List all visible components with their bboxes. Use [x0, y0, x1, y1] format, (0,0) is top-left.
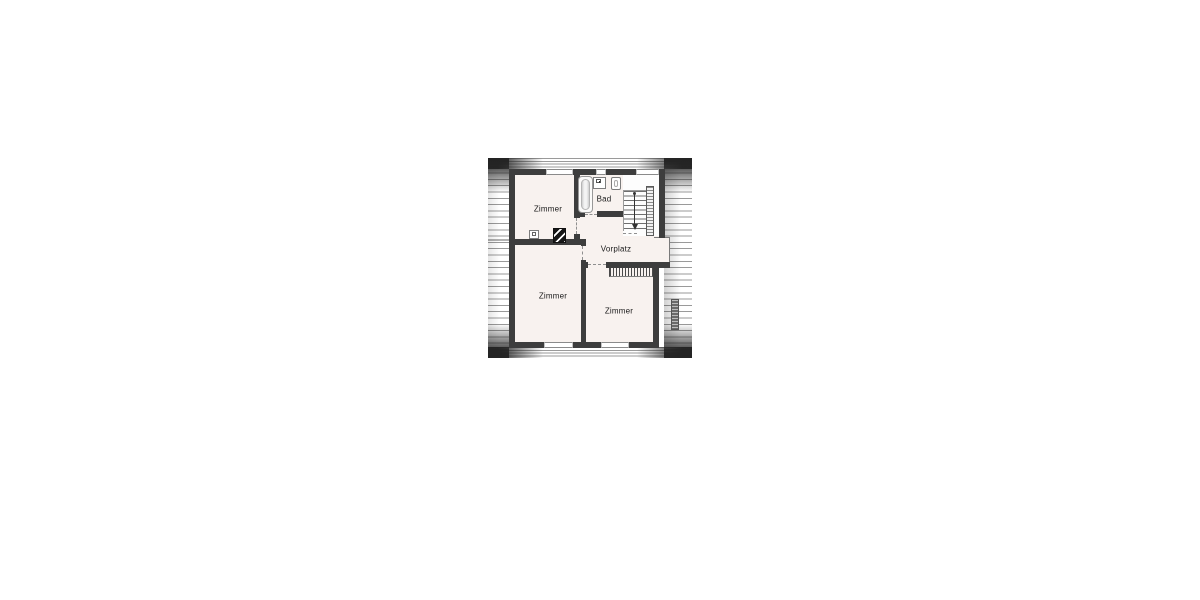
window	[636, 169, 659, 175]
corner-shade	[637, 158, 692, 169]
room-label-zimmer-bottom-right: Zimmer	[605, 307, 633, 316]
room-label-vorplatz: Vorplatz	[601, 245, 632, 254]
bathtub-basin	[581, 179, 590, 210]
washbasin-icon	[593, 177, 606, 189]
exterior-wall-right-lower	[653, 262, 659, 348]
room-label-zimmer-bottom-left: Zimmer	[539, 292, 567, 301]
corner-shade	[488, 158, 543, 169]
window	[601, 342, 629, 348]
small-washbasin-bowl	[532, 232, 536, 236]
floor-plan: Zimmer Bad Vorplatz Zimmer Zimmer	[488, 158, 692, 360]
stair-down-arrow	[632, 224, 638, 230]
exterior-wall-right-upper	[659, 169, 665, 238]
roof-joint-line	[488, 239, 509, 241]
door-zimmer-bottom-left	[582, 246, 583, 260]
door-bad	[585, 214, 597, 215]
page-background: Zimmer Bad Vorplatz Zimmer Zimmer	[0, 0, 1200, 600]
wall-zimmer-tl-divider	[509, 239, 584, 245]
window	[544, 342, 573, 348]
small-washbasin-icon	[529, 230, 539, 239]
room-label-bad: Bad	[597, 195, 612, 204]
window	[596, 169, 606, 175]
bathtub-icon	[578, 176, 593, 213]
stair-entry-opening	[623, 233, 637, 234]
exterior-wall-left	[509, 169, 515, 348]
toilet-bowl	[614, 180, 618, 187]
tap-dot	[599, 181, 600, 183]
chimney-icon	[553, 228, 566, 243]
tap-icon	[596, 179, 601, 183]
watermark-strip	[671, 299, 679, 330]
wall-zimmer-tl-vorplatz	[574, 234, 580, 241]
wall-bad-bottom-b	[597, 211, 623, 217]
stairwell-guard-railing	[609, 267, 653, 277]
stair-railing	[646, 186, 654, 236]
window	[546, 169, 573, 175]
door-zimmer-top-left	[576, 218, 577, 234]
stair-arrow-line	[634, 194, 635, 225]
corner-shade	[637, 347, 692, 358]
vorplatz-recess	[654, 237, 670, 263]
door-zimmer-bottom-right	[588, 264, 606, 265]
wall-zimmer-bl-right-b	[581, 260, 586, 348]
room-label-zimmer-top-left: Zimmer	[534, 205, 562, 214]
corner-shade	[488, 347, 543, 358]
wall-vorplatz-bottom-a	[582, 262, 588, 268]
toilet-icon	[611, 177, 621, 190]
wall-vorplatz-bottom-b	[606, 262, 670, 268]
wall-zimmer-bl-right-a	[581, 239, 586, 246]
